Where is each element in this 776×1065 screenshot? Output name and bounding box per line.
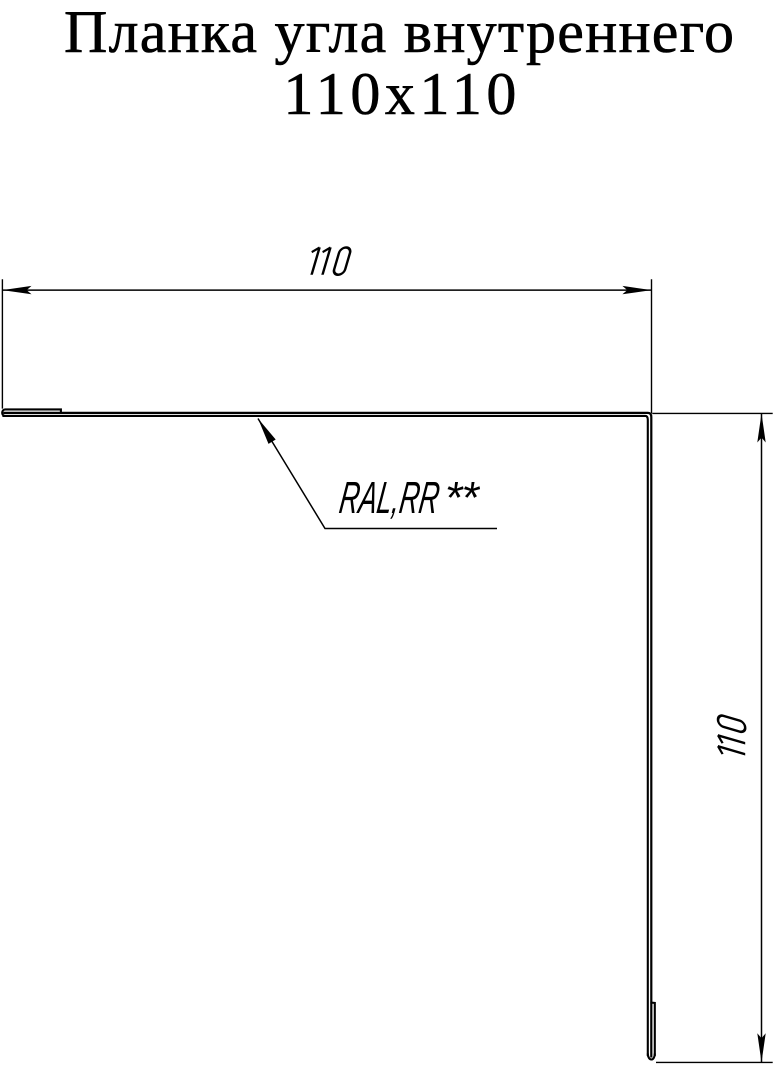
svg-text:RAL,RR: RAL,RR [337,472,443,523]
svg-text:110x110: 110x110 [283,61,516,127]
svg-text:Планка угла внутреннего: Планка угла внутреннего [64,0,734,65]
